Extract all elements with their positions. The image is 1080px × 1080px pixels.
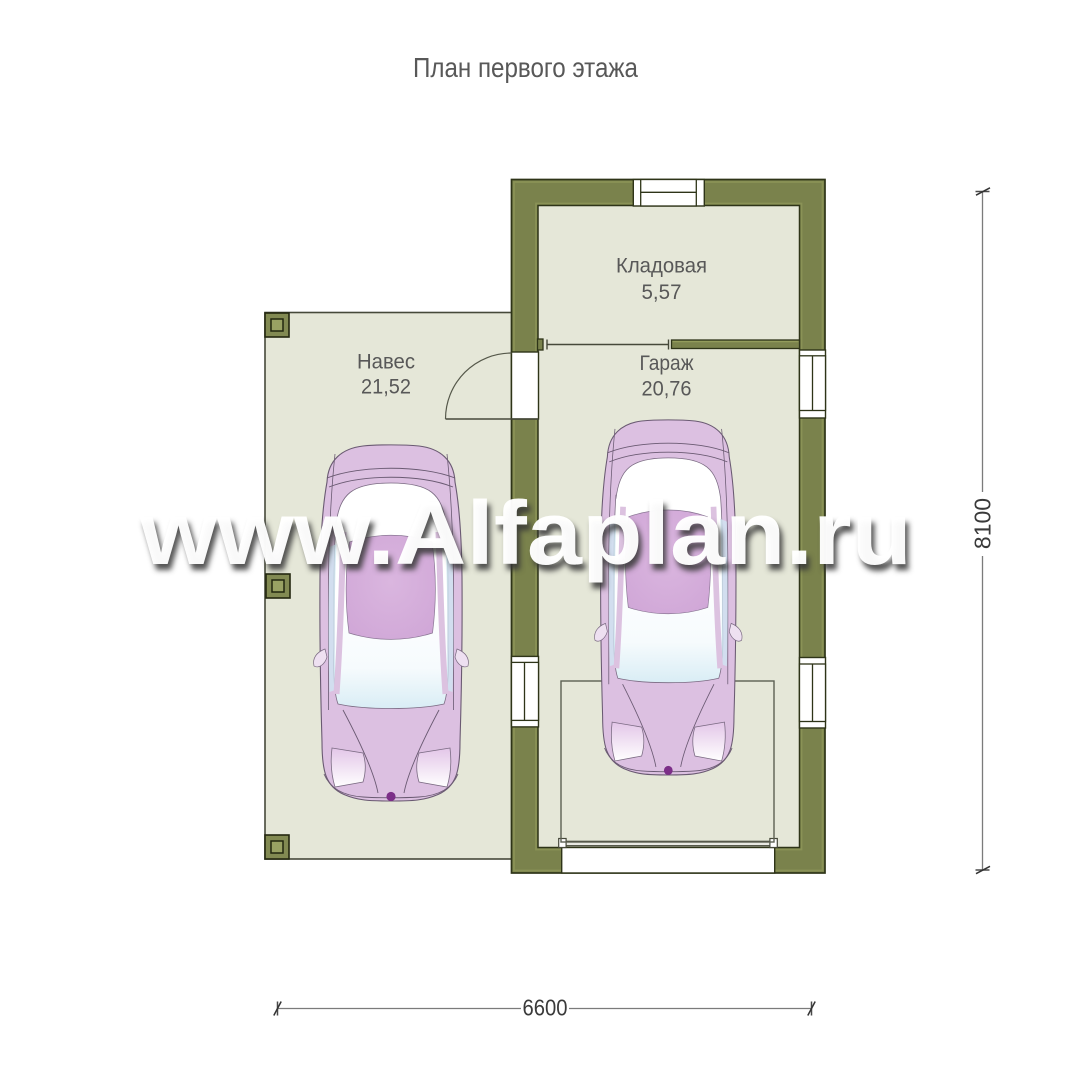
svg-text:План первого этажа: План первого этажа: [413, 52, 638, 83]
svg-text:6600: 6600: [523, 995, 568, 1021]
svg-text:21,52: 21,52: [361, 376, 411, 399]
svg-text:Навес: Навес: [357, 351, 415, 374]
svg-text:20,76: 20,76: [642, 378, 692, 401]
svg-text:5,57: 5,57: [642, 281, 682, 304]
svg-text:Кладовая: Кладовая: [616, 255, 707, 278]
svg-text:8100: 8100: [970, 498, 996, 549]
svg-text:Гараж: Гараж: [640, 352, 694, 375]
